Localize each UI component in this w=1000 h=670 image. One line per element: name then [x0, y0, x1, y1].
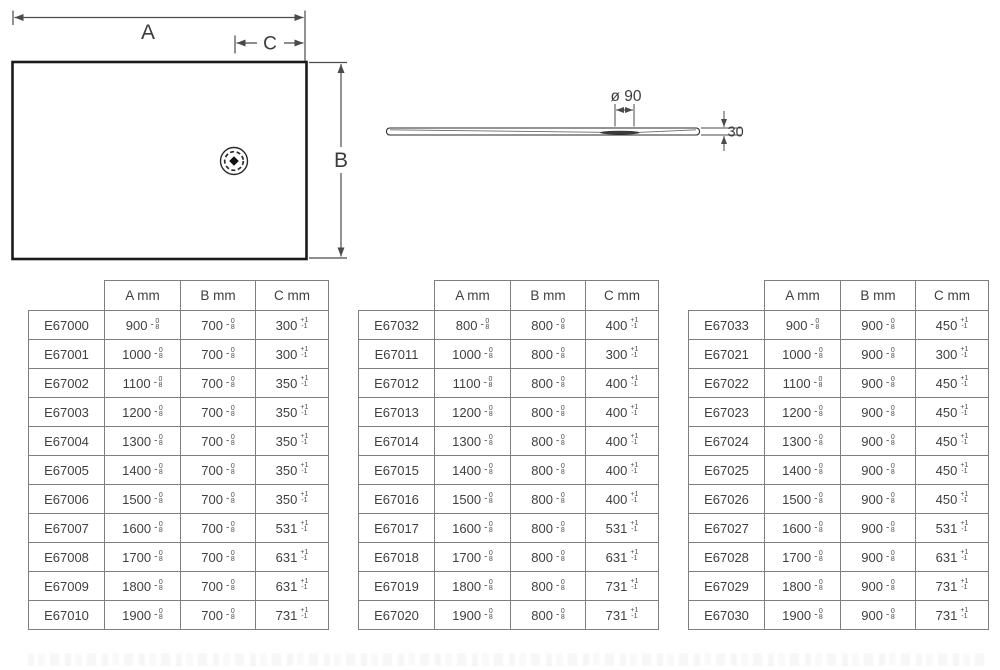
value-c: 731+1-1 [916, 572, 989, 601]
column-header: A mm [105, 281, 181, 311]
value-b: 700-08 [181, 311, 256, 340]
value-a: 800-08 [435, 311, 511, 340]
value-b: 700-08 [181, 543, 256, 572]
value-b: 800-08 [511, 543, 586, 572]
drain-recess [600, 131, 640, 135]
value-b: 700-08 [181, 369, 256, 398]
product-code: E67009 [29, 572, 105, 601]
value-c: 350+1-1 [256, 427, 329, 456]
table-row: E670011000-08700-08300+1-1 [29, 340, 329, 369]
value-c: 300+1-1 [256, 340, 329, 369]
tray-outline [13, 62, 307, 259]
product-code: E67028 [689, 543, 765, 572]
thickness-label: 30 [728, 125, 744, 141]
value-c: 350+1-1 [256, 398, 329, 427]
side-view-drawing: ø 90 30 [375, 75, 765, 165]
column-header: A mm [765, 281, 841, 311]
table-row: E670251400-08900-08450+1-1 [689, 456, 989, 485]
table-row: E670301900-08900-08731+1-1 [689, 601, 989, 630]
table-row: E670151400-08800-08400+1-1 [359, 456, 659, 485]
value-b: 900-08 [841, 427, 916, 456]
table-row: E670021100-08700-08350+1-1 [29, 369, 329, 398]
product-code: E67026 [689, 485, 765, 514]
table-corner-blank [689, 281, 765, 311]
value-b: 700-08 [181, 485, 256, 514]
value-a: 1200-08 [765, 398, 841, 427]
value-c: 731+1-1 [256, 601, 329, 630]
table-row: E670211000-08900-08300+1-1 [689, 340, 989, 369]
value-a: 900-08 [765, 311, 841, 340]
table-corner-blank [359, 281, 435, 311]
value-c: 450+1-1 [916, 456, 989, 485]
value-c: 400+1-1 [586, 398, 659, 427]
table-row: E670221100-08900-08450+1-1 [689, 369, 989, 398]
value-b: 700-08 [181, 514, 256, 543]
value-a: 1600-08 [765, 514, 841, 543]
value-b: 800-08 [511, 340, 586, 369]
drain-symbol-icon [221, 148, 248, 175]
value-b: 800-08 [511, 601, 586, 630]
dimension-table: A mmB mmC mmE67000900-08700-08300+1-1E67… [28, 280, 329, 630]
dimension-table-1: A mmB mmC mmE67000900-08700-08300+1-1E67… [28, 280, 329, 630]
column-header: B mm [841, 281, 916, 311]
value-c: 531+1-1 [916, 514, 989, 543]
table-row: E670201900-08800-08731+1-1 [359, 601, 659, 630]
value-a: 1400-08 [765, 456, 841, 485]
product-code: E67022 [689, 369, 765, 398]
value-b: 700-08 [181, 427, 256, 456]
value-b: 700-08 [181, 398, 256, 427]
table-row: E670261500-08900-08450+1-1 [689, 485, 989, 514]
dimension-diameter [615, 104, 634, 127]
value-c: 731+1-1 [586, 572, 659, 601]
product-code: E67015 [359, 456, 435, 485]
value-a: 1100-08 [435, 369, 511, 398]
diameter-label: ø 90 [610, 88, 641, 105]
table-row: E670081700-08700-08631+1-1 [29, 543, 329, 572]
table-row: E670131200-08800-08400+1-1 [359, 398, 659, 427]
dimension-a [13, 11, 305, 62]
dimension-c-label: C [263, 34, 277, 55]
product-code: E67004 [29, 427, 105, 456]
table-row: E670111000-08800-08300+1-1 [359, 340, 659, 369]
product-code: E67000 [29, 311, 105, 340]
value-b: 700-08 [181, 572, 256, 601]
value-c: 400+1-1 [586, 427, 659, 456]
table-row: E670271600-08900-08531+1-1 [689, 514, 989, 543]
value-b: 700-08 [181, 456, 256, 485]
plan-view-drawing: A C B [0, 0, 370, 270]
value-b: 800-08 [511, 311, 586, 340]
value-c: 631+1-1 [256, 543, 329, 572]
value-c: 300+1-1 [256, 311, 329, 340]
product-code: E67025 [689, 456, 765, 485]
value-c: 400+1-1 [586, 485, 659, 514]
value-b: 900-08 [841, 601, 916, 630]
product-code: E67019 [359, 572, 435, 601]
value-b: 800-08 [511, 514, 586, 543]
value-c: 350+1-1 [256, 369, 329, 398]
dimension-table: A mmB mmC mmE67032800-08800-08400+1-1E67… [358, 280, 659, 630]
value-b: 800-08 [511, 456, 586, 485]
value-c: 350+1-1 [256, 485, 329, 514]
product-code: E67018 [359, 543, 435, 572]
value-b: 800-08 [511, 398, 586, 427]
value-c: 400+1-1 [586, 456, 659, 485]
table-row: E67033900-08900-08450+1-1 [689, 311, 989, 340]
product-code: E67006 [29, 485, 105, 514]
value-c: 450+1-1 [916, 311, 989, 340]
dimension-table: A mmB mmC mmE67033900-08900-08450+1-1E67… [688, 280, 989, 630]
value-b: 900-08 [841, 369, 916, 398]
value-c: 531+1-1 [256, 514, 329, 543]
value-b: 700-08 [181, 340, 256, 369]
product-code: E67021 [689, 340, 765, 369]
value-a: 1000-08 [435, 340, 511, 369]
table-row: E670031200-08700-08350+1-1 [29, 398, 329, 427]
value-c: 350+1-1 [256, 456, 329, 485]
product-code: E67020 [359, 601, 435, 630]
value-a: 1000-08 [765, 340, 841, 369]
dimension-table-2: A mmB mmC mmE67032800-08800-08400+1-1E67… [358, 280, 659, 630]
value-a: 900-08 [105, 311, 181, 340]
table-corner-blank [29, 281, 105, 311]
value-a: 1900-08 [105, 601, 181, 630]
spec-sheet-page: A C B [0, 0, 1000, 670]
table-row: E670041300-08700-08350+1-1 [29, 427, 329, 456]
table-row: E670071600-08700-08531+1-1 [29, 514, 329, 543]
value-c: 631+1-1 [256, 572, 329, 601]
value-c: 400+1-1 [586, 369, 659, 398]
column-header: C mm [586, 281, 659, 311]
table-row: E670141300-08800-08400+1-1 [359, 427, 659, 456]
product-code: E67008 [29, 543, 105, 572]
value-c: 300+1-1 [916, 340, 989, 369]
value-a: 1600-08 [105, 514, 181, 543]
value-a: 1300-08 [105, 427, 181, 456]
table-row: E670051400-08700-08350+1-1 [29, 456, 329, 485]
table-row: E67000900-08700-08300+1-1 [29, 311, 329, 340]
table-row: E670241300-08900-08450+1-1 [689, 427, 989, 456]
value-a: 1100-08 [105, 369, 181, 398]
value-c: 400+1-1 [586, 311, 659, 340]
product-code: E67002 [29, 369, 105, 398]
product-code: E67032 [359, 311, 435, 340]
product-code: E67024 [689, 427, 765, 456]
value-c: 731+1-1 [916, 601, 989, 630]
product-code: E67012 [359, 369, 435, 398]
value-a: 1300-08 [765, 427, 841, 456]
value-a: 1800-08 [105, 572, 181, 601]
product-code: E67001 [29, 340, 105, 369]
value-b: 800-08 [511, 572, 586, 601]
value-b: 800-08 [511, 485, 586, 514]
value-b: 900-08 [841, 456, 916, 485]
value-b: 900-08 [841, 543, 916, 572]
dimension-table-3: A mmB mmC mmE67033900-08900-08450+1-1E67… [688, 280, 989, 630]
value-c: 631+1-1 [586, 543, 659, 572]
table-row: E670121100-08800-08400+1-1 [359, 369, 659, 398]
product-code: E67029 [689, 572, 765, 601]
value-a: 1300-08 [435, 427, 511, 456]
value-c: 631+1-1 [916, 543, 989, 572]
value-a: 1600-08 [435, 514, 511, 543]
value-a: 1800-08 [435, 572, 511, 601]
table-row: E670181700-08800-08631+1-1 [359, 543, 659, 572]
product-code: E67010 [29, 601, 105, 630]
dimension-b-label: B [334, 149, 348, 172]
value-a: 1100-08 [765, 369, 841, 398]
table-row: E670191800-08800-08731+1-1 [359, 572, 659, 601]
value-a: 1900-08 [765, 601, 841, 630]
dimension-a-label: A [141, 21, 155, 44]
value-a: 1500-08 [765, 485, 841, 514]
product-code: E67005 [29, 456, 105, 485]
table-row: E670281700-08900-08631+1-1 [689, 543, 989, 572]
value-a: 1700-08 [435, 543, 511, 572]
table-row: E670091800-08700-08631+1-1 [29, 572, 329, 601]
table-row: E670161500-08800-08400+1-1 [359, 485, 659, 514]
value-c: 450+1-1 [916, 398, 989, 427]
product-code: E67030 [689, 601, 765, 630]
value-b: 900-08 [841, 572, 916, 601]
value-a: 1700-08 [105, 543, 181, 572]
value-b: 900-08 [841, 514, 916, 543]
table-row: E67032800-08800-08400+1-1 [359, 311, 659, 340]
value-b: 700-08 [181, 601, 256, 630]
value-b: 900-08 [841, 340, 916, 369]
table-row: E670171600-08800-08531+1-1 [359, 514, 659, 543]
table-row: E670291800-08900-08731+1-1 [689, 572, 989, 601]
value-a: 1400-08 [105, 456, 181, 485]
table-row: E670231200-08900-08450+1-1 [689, 398, 989, 427]
product-code: E67014 [359, 427, 435, 456]
product-code: E67027 [689, 514, 765, 543]
value-a: 1800-08 [765, 572, 841, 601]
value-c: 450+1-1 [916, 427, 989, 456]
table-row: E670101900-08700-08731+1-1 [29, 601, 329, 630]
value-b: 800-08 [511, 427, 586, 456]
value-c: 300+1-1 [586, 340, 659, 369]
ghost-footnote-strip [28, 653, 988, 666]
product-code: E67016 [359, 485, 435, 514]
product-code: E67003 [29, 398, 105, 427]
table-row: E670061500-08700-08350+1-1 [29, 485, 329, 514]
value-b: 800-08 [511, 369, 586, 398]
value-c: 531+1-1 [586, 514, 659, 543]
value-a: 1400-08 [435, 456, 511, 485]
value-c: 450+1-1 [916, 369, 989, 398]
column-header: A mm [435, 281, 511, 311]
value-c: 450+1-1 [916, 485, 989, 514]
value-a: 1700-08 [765, 543, 841, 572]
product-code: E67007 [29, 514, 105, 543]
product-code: E67013 [359, 398, 435, 427]
value-a: 1500-08 [435, 485, 511, 514]
value-b: 900-08 [841, 485, 916, 514]
value-a: 1200-08 [435, 398, 511, 427]
column-header: C mm [256, 281, 329, 311]
product-code: E67033 [689, 311, 765, 340]
value-c: 731+1-1 [586, 601, 659, 630]
value-b: 900-08 [841, 311, 916, 340]
product-code: E67011 [359, 340, 435, 369]
product-code: E67023 [689, 398, 765, 427]
product-code: E67017 [359, 514, 435, 543]
value-a: 1500-08 [105, 485, 181, 514]
column-header: C mm [916, 281, 989, 311]
value-a: 1900-08 [435, 601, 511, 630]
column-header: B mm [181, 281, 256, 311]
column-header: B mm [511, 281, 586, 311]
value-a: 1200-08 [105, 398, 181, 427]
value-b: 900-08 [841, 398, 916, 427]
value-a: 1000-08 [105, 340, 181, 369]
